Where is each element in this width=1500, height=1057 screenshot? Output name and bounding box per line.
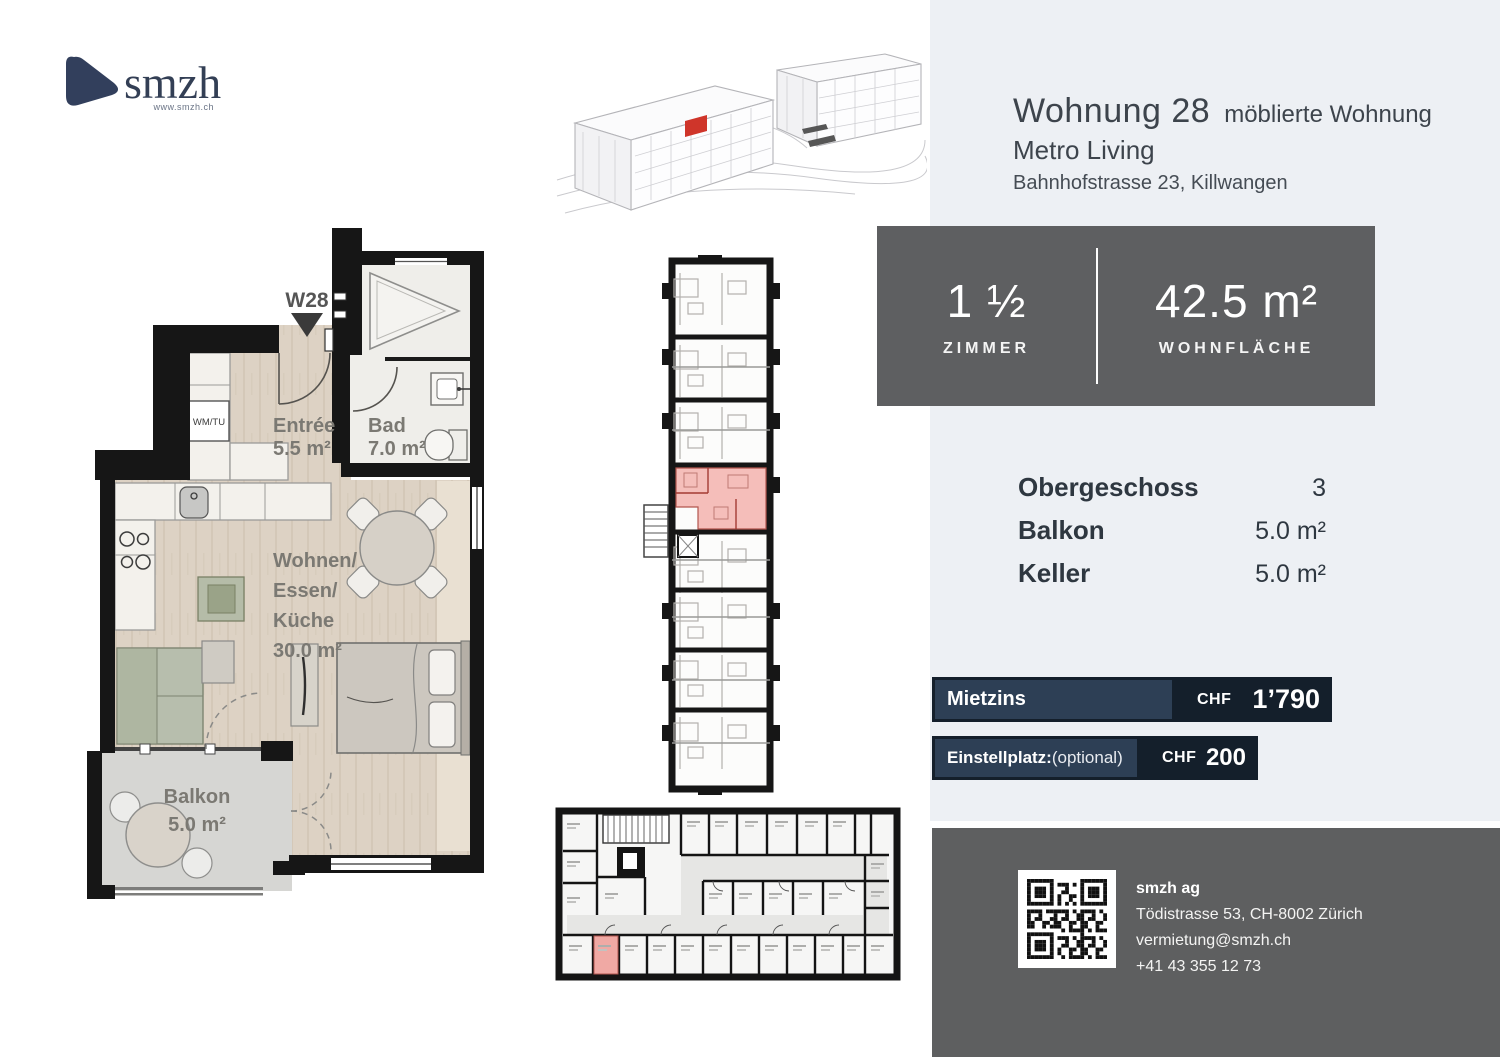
bad-area: 7.0 m² [368,438,426,460]
parking-value: 200 [1206,744,1246,772]
rent-currency: CHF [1197,691,1231,709]
footer-phone: +41 43 355 12 73 [1136,954,1363,980]
rooms-value: 1 ½ [947,274,1027,328]
wohnen-area: 30.0 m² [273,640,342,662]
parking-bar: Einstellplatz:(optional) CHF 200 [932,736,1258,780]
area-caption: WOHNFLÄCHE [1159,340,1315,358]
kitchen-counter [115,483,331,520]
detail-label: Keller [1018,558,1090,589]
rent-label: Mietzins [935,680,1172,719]
detail-value: 5.0 m² [1255,560,1326,589]
qr-code-pattern [1027,879,1107,959]
site-3d-sketch [555,28,927,220]
basement-plan [553,803,905,990]
parking-currency: CHF [1162,749,1196,767]
footer-address: Tödistrasse 53, CH-8002 Zürich [1136,902,1363,928]
entree-label: Entrée [273,415,335,437]
coffee-table [198,577,244,621]
building-left [575,86,773,210]
smzh-logo: smzh www.smzh.ch [62,48,282,118]
balkon-area: 5.0 m² [168,814,226,836]
logo-wordmark: smzh [124,57,221,108]
detail-label: Balkon [1018,515,1105,546]
stairwell [644,505,668,557]
smzh-logo-icon [66,57,118,106]
footer-company: smzh ag [1136,876,1363,902]
detail-value: 5.0 m² [1255,517,1326,546]
wohnen-label-3: Küche [273,610,334,632]
detail-value: 3 [1312,474,1326,503]
rent-bar: Mietzins CHF 1’790 [932,677,1332,722]
key-stats-box: 1 ½ ZIMMER 42.5 m² WOHNFLÄCHE [877,226,1375,406]
side-table [202,641,234,683]
parking-label-note: (optional) [1052,748,1123,768]
toilet [425,430,467,460]
storey-plan [628,255,813,795]
bed [337,641,470,755]
unit-marker-label: W28 [285,289,329,312]
detail-row-floor: Obergeschoss 3 [1018,472,1326,515]
wohnen-label-2: Essen/ [273,580,338,602]
page-subtitle: möblierte Wohnung [1224,101,1432,129]
rooms-stat: 1 ½ ZIMMER [877,226,1096,406]
title-block: Wohnung 28 möblierte Wohnung Metro Livin… [1013,92,1473,195]
bad-label: Bad [368,415,406,437]
footer-email: vermietung@smzh.ch [1136,928,1363,954]
logo-url: www.smzh.ch [152,102,214,112]
detail-row-cellar: Keller 5.0 m² [1018,558,1326,601]
rent-value: 1’790 [1252,684,1320,715]
details-list: Obergeschoss 3 Balkon 5.0 m² Keller 5.0 … [1018,472,1326,601]
detail-label: Obergeschoss [1018,472,1199,503]
page-title: Wohnung 28 [1013,92,1210,131]
wohnen-label-1: Wohnen/ [273,550,358,572]
wm-label: WM/TU [193,417,225,428]
contact-footer: smzh ag Tödistrasse 53, CH-8002 Zürich v… [932,828,1500,1057]
parking-label: Einstellplatz:(optional) [935,739,1137,777]
elevator [678,535,698,557]
entree-area: 5.5 m² [273,438,331,460]
parking-label-main: Einstellplatz: [947,748,1052,768]
kitchen-sink [180,487,208,518]
building-right [777,54,921,146]
detail-row-balcony: Balkon 5.0 m² [1018,515,1326,558]
balkon-label: Balkon [164,786,231,808]
project-name: Metro Living [1013,135,1473,166]
dining-set [345,496,450,601]
area-stat: 42.5 m² WOHNFLÄCHE [1098,226,1375,406]
basement-stairs [603,815,669,843]
rooms-caption: ZIMMER [943,340,1030,358]
apartment-floorplan: WM/TU [85,225,500,905]
sofa [117,648,203,744]
area-value: 42.5 m² [1155,274,1318,328]
property-address: Bahnhofstrasse 23, Killwangen [1013,172,1473,195]
qr-code [1018,870,1116,968]
highlighted-keller-cell [594,936,618,974]
